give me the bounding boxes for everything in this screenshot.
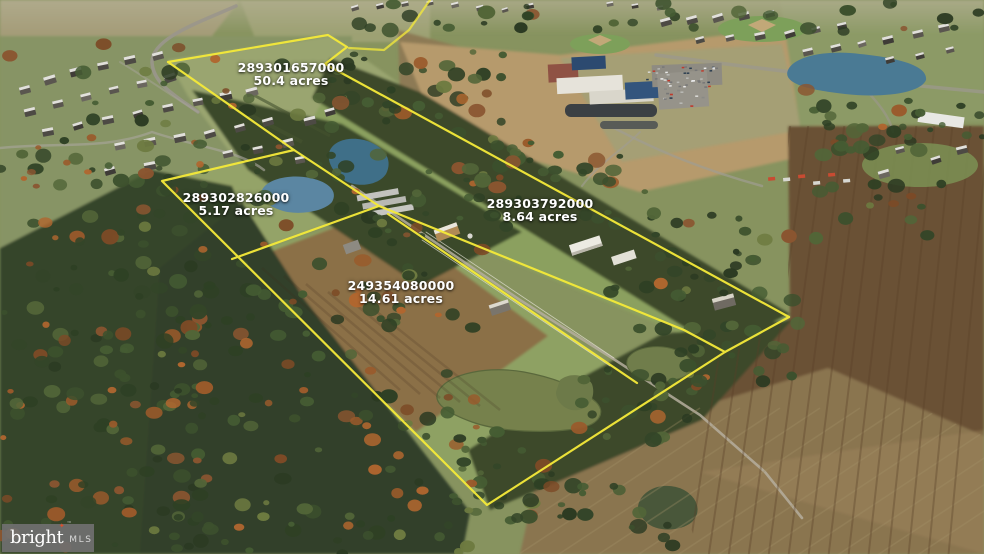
aerial-scene [0,0,984,554]
brand-mls-label: MLS [69,535,92,545]
parcel-label-2: 289302826000 5.17 acres [183,191,290,217]
parcel-acres: 50.4 acres [238,74,345,87]
brand-star-icon: ✦ [59,523,64,530]
parcel-acres: 14.61 acres [348,292,455,305]
trademark-symbol: ™ [67,522,72,527]
aerial-parcel-photo: 289301657000 50.4 acres 289302826000 5.1… [0,0,984,554]
brightmls-watermark: bright✦™ MLS [2,524,94,552]
parcel-label-3: 289303792000 8.64 acres [487,197,594,223]
parcel-acres: 5.17 acres [183,204,290,217]
parcel-acres: 8.64 acres [487,210,594,223]
parcel-label-4: 249354080000 14.61 acres [348,279,455,305]
brand-wordmark: bright✦™ [10,529,63,547]
parcel-label-1: 289301657000 50.4 acres [238,61,345,87]
